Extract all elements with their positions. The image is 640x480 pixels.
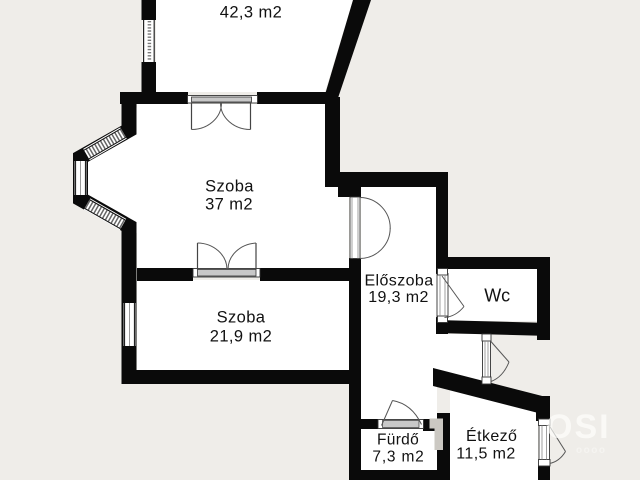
svg-text:21,9 m2: 21,9 m2 [210, 328, 272, 346]
svg-text:Étkező: Étkező [466, 426, 517, 445]
svg-text:OSI: OSI [546, 408, 611, 446]
svg-text:42,3 m2: 42,3 m2 [220, 4, 282, 22]
svg-text:11,5 m2: 11,5 m2 [456, 446, 515, 463]
svg-text:Szoba: Szoba [205, 177, 254, 195]
svg-text:Szoba: Szoba [217, 309, 266, 327]
svg-text:19,3 m2: 19,3 m2 [368, 289, 429, 306]
svg-text:37 m2: 37 m2 [205, 196, 253, 214]
svg-text:Előszoba: Előszoba [364, 273, 433, 290]
svg-text:Fürdő: Fürdő [377, 431, 419, 448]
svg-text:7,3 m2: 7,3 m2 [372, 448, 424, 465]
svg-text:оооо: оооо [576, 445, 606, 456]
svg-text:Wc: Wc [484, 286, 510, 306]
